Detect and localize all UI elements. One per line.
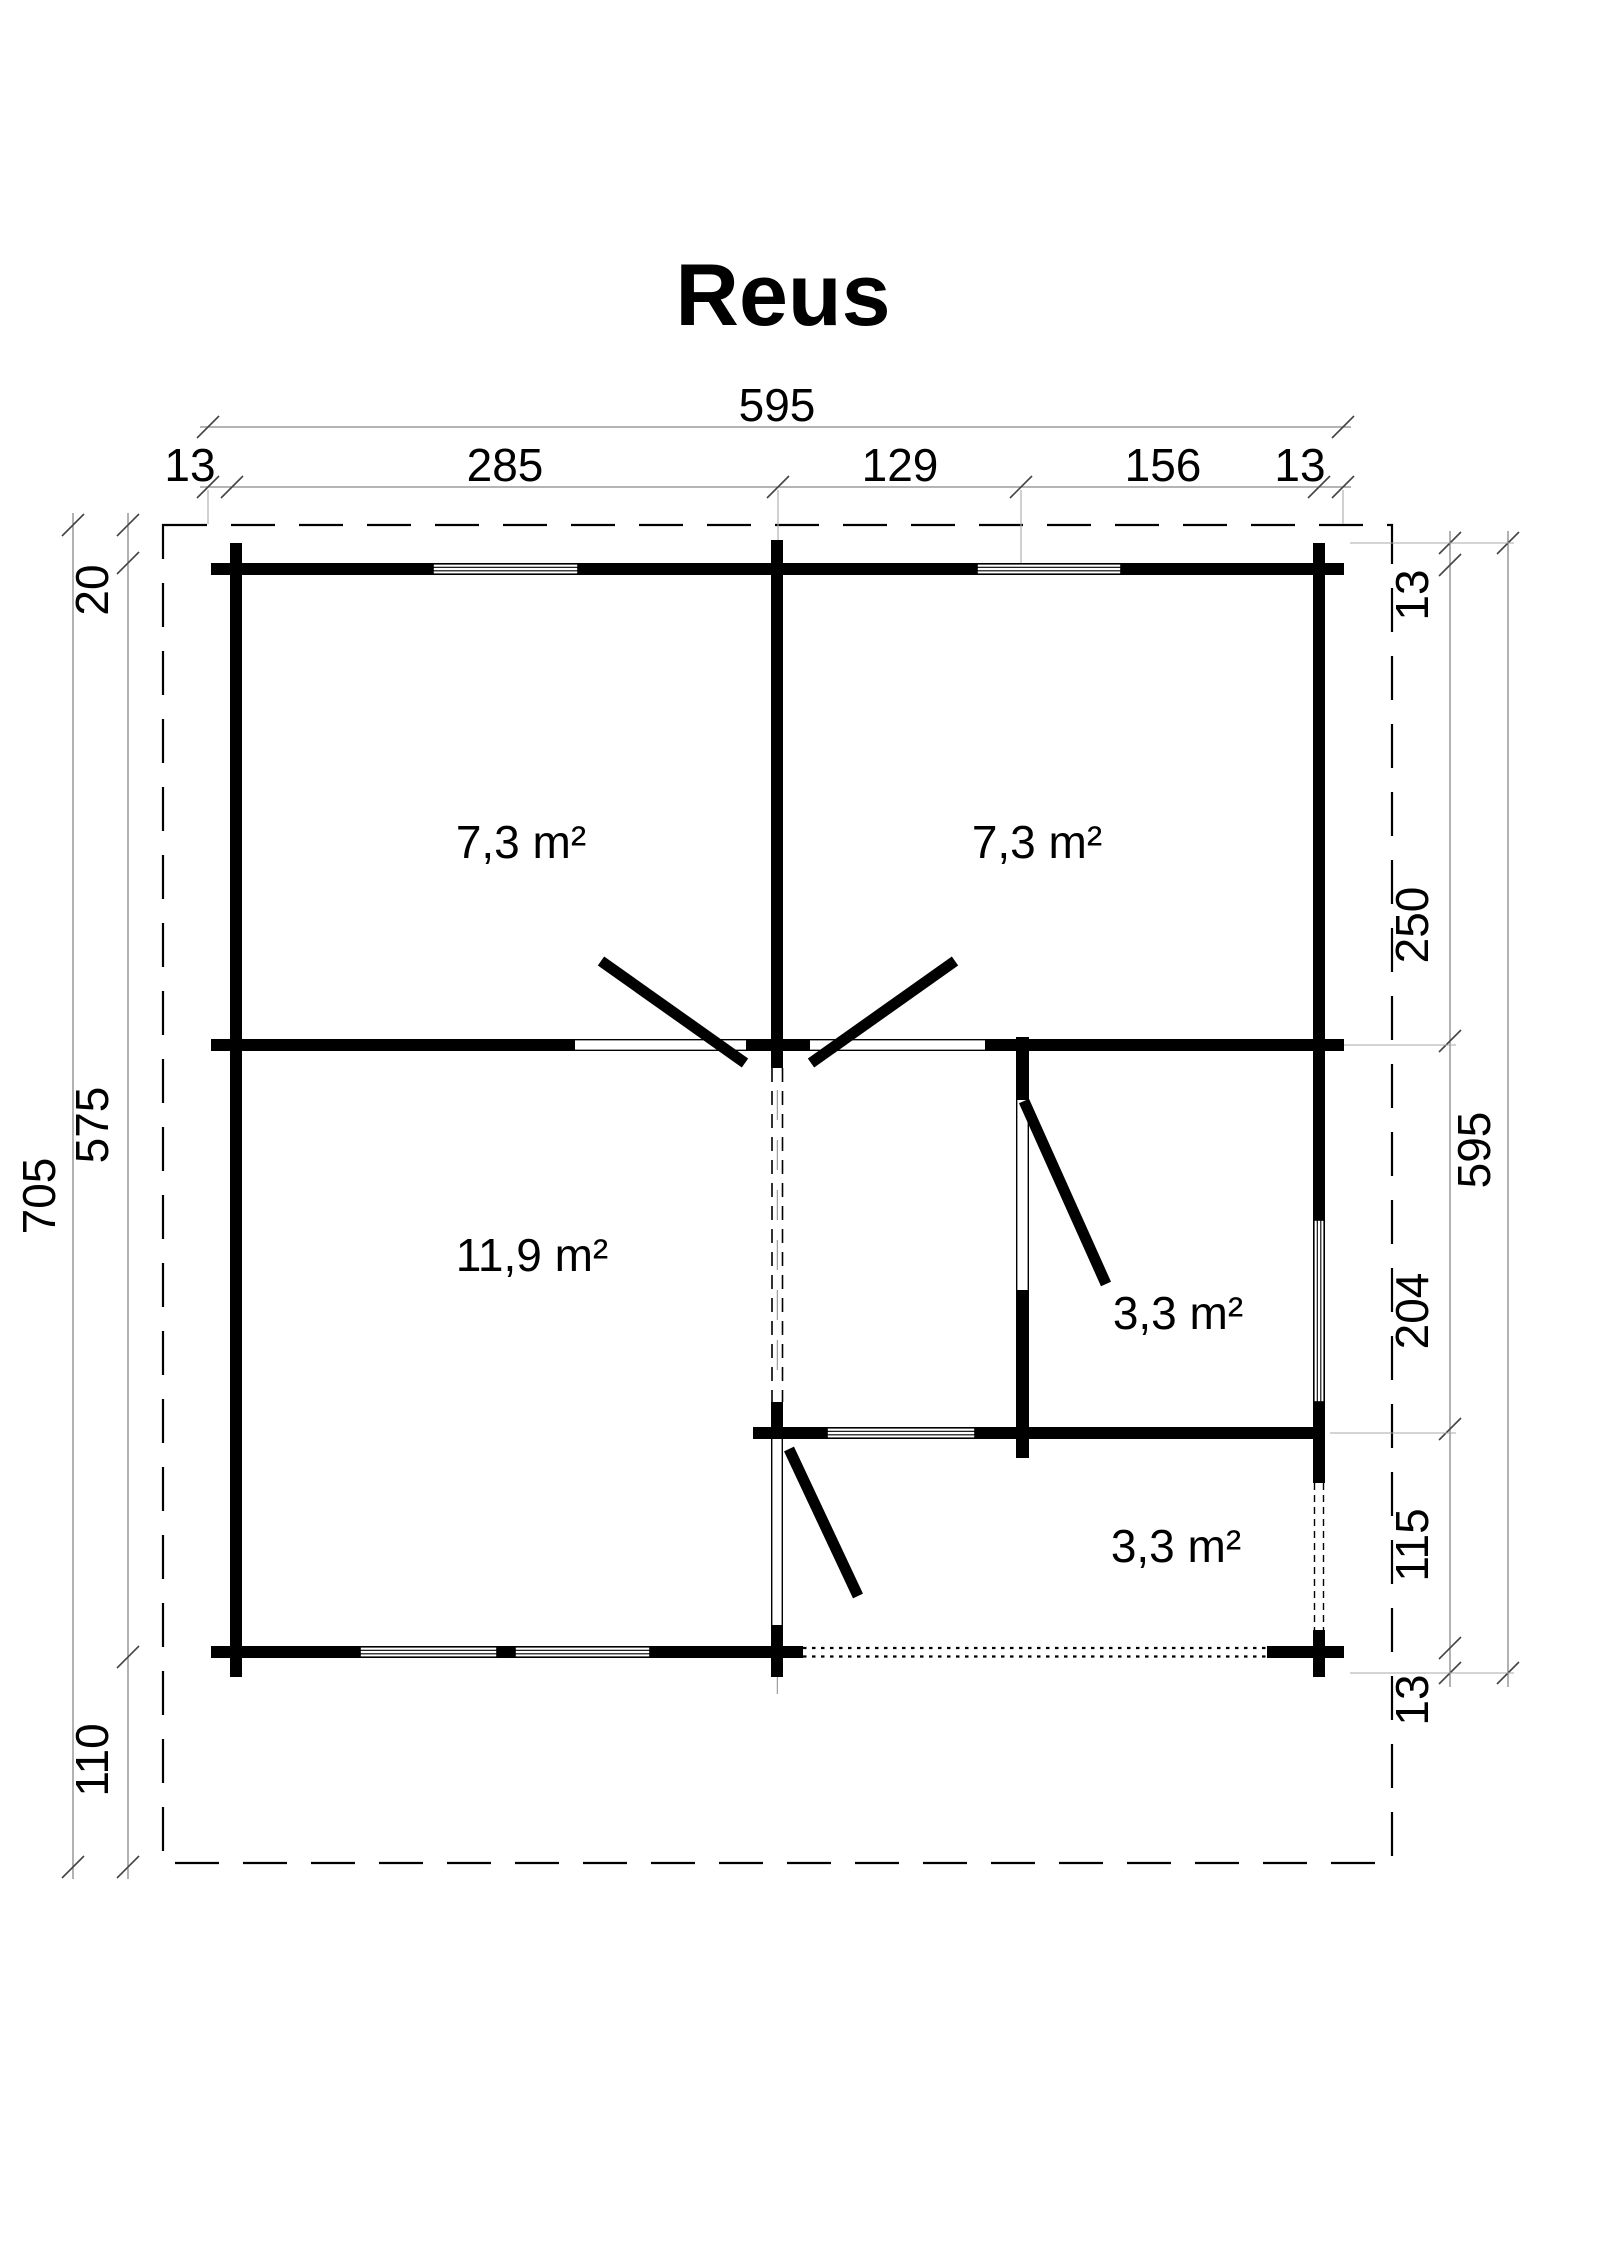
dim-left-total: 705 — [13, 1158, 65, 1235]
dim-top-seg-4: 13 — [1274, 439, 1325, 491]
wall-bottom-left-segment — [211, 1646, 360, 1658]
wall-middle-horizontal-right — [985, 1039, 1344, 1051]
windows — [360, 564, 1324, 1658]
dim-top-total: 595 — [739, 379, 816, 431]
wall-top-left-segment — [211, 563, 433, 575]
wall-right-upper — [1313, 543, 1325, 1220]
dim-top-seg-3: 156 — [1125, 439, 1202, 491]
dim-right-total: 595 — [1448, 1112, 1500, 1189]
area-label-room-mid-right: 3,3 m² — [1113, 1287, 1243, 1339]
door-leaves — [601, 961, 1106, 1596]
wall-top-right-segment — [1121, 563, 1344, 575]
door-leaf-entrance — [789, 1449, 858, 1596]
area-label-room-porch: 3,3 m² — [1111, 1520, 1241, 1572]
dim-left-seg-2: 110 — [66, 1723, 118, 1796]
dim-top-seg-1: 285 — [467, 439, 544, 491]
wall-porch-west-stub-upper — [771, 1402, 783, 1439]
wall-bottom-right-segment — [1267, 1646, 1344, 1658]
plan-title: Reus — [675, 245, 890, 344]
dim-left-seg-1: 575 — [66, 1087, 118, 1164]
window-porch-north — [827, 1428, 975, 1438]
area-label-room-top-right: 7,3 m² — [972, 816, 1102, 868]
floor-plan-drawing: Reus 595 13 285 129 156 13 705 2 — [0, 0, 1600, 2263]
dimension-right: 13 250 204 115 13 595 — [1330, 531, 1519, 1726]
door-leaf-room-mid-right — [1024, 1101, 1106, 1284]
dim-left-seg-0: 20 — [66, 564, 118, 615]
wall-porch-north-left — [753, 1427, 827, 1439]
area-label-room-top-left: 7,3 m² — [456, 816, 586, 868]
dim-right-seg-2: 204 — [1386, 1273, 1438, 1350]
wall-right-mid — [1313, 1402, 1325, 1483]
window-bottom-double — [360, 1646, 650, 1658]
window-top-right — [977, 564, 1121, 574]
room-area-labels: 7,3 m² 7,3 m² 11,9 m² 3,3 m² 3,3 m² — [456, 816, 1243, 1572]
window-right-porch — [1315, 1483, 1324, 1630]
wall-left — [230, 543, 242, 1677]
floor-plan-sheet: Reus 595 13 285 129 156 13 705 2 — [0, 0, 1600, 2263]
wall-midright-vertical-upper — [1016, 1037, 1029, 1100]
door-leaf-room-top-right — [811, 961, 955, 1063]
door-openings — [575, 1040, 1028, 1625]
door-leaf-room-top-left — [601, 961, 745, 1063]
dim-right-seg-0: 13 — [1386, 569, 1438, 620]
window-top-left — [433, 564, 578, 574]
dim-right-seg-1: 250 — [1386, 887, 1438, 964]
wall-middle-horizontal-left — [211, 1039, 575, 1051]
dim-right-seg-4: 13 — [1386, 1674, 1438, 1725]
window-right-mid — [1314, 1220, 1324, 1402]
dim-top-seg-0: 13 — [164, 439, 215, 491]
dimension-left: 705 20 575 110 — [13, 513, 139, 1879]
dim-top-seg-2: 129 — [862, 439, 939, 491]
wall-center-vertical — [771, 540, 783, 1068]
dim-right-seg-3: 115 — [1386, 1508, 1438, 1581]
area-label-room-living: 11,9 m² — [456, 1229, 609, 1281]
dimension-top: 595 13 285 129 156 13 — [164, 379, 1354, 563]
window-mullion — [497, 1646, 515, 1658]
wall-porch-north-right — [975, 1427, 1325, 1439]
wall-middle-horizontal-center — [746, 1039, 810, 1051]
wall-porch-west-stub-lower — [771, 1625, 783, 1677]
